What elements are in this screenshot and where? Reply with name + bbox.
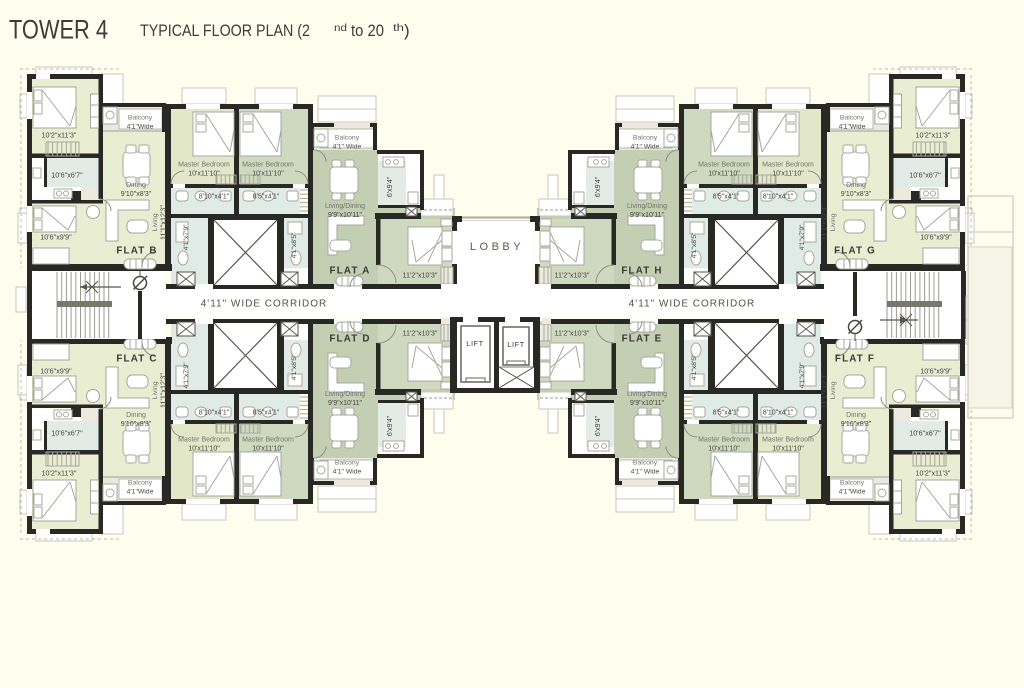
- svg-text:10'x11'10": 10'x11'10": [708, 171, 740, 178]
- svg-text:4'1"x8'5": 4'1"x8'5": [691, 354, 698, 381]
- svg-text:4'1"Wide: 4'1"Wide: [839, 489, 866, 496]
- svg-text:FLAT A: FLAT A: [330, 266, 371, 277]
- svg-text:10'x11'10": 10'x11'10": [772, 171, 804, 178]
- svg-text:9'9"x10'11": 9'9"x10'11": [328, 400, 362, 407]
- svg-text:to 20: to 20: [351, 21, 384, 40]
- svg-text:9'9"x10'11": 9'9"x10'11": [328, 212, 362, 219]
- svg-text:LIFT: LIFT: [466, 339, 483, 348]
- svg-text:Balcony: Balcony: [335, 460, 360, 467]
- svg-text:): ): [404, 21, 410, 40]
- svg-text:Dining: Dining: [126, 182, 146, 189]
- svg-text:4'1"x7'9": 4'1"x7'9": [183, 224, 190, 251]
- svg-text:9'10"x8'3": 9'10"x8'3": [121, 421, 152, 428]
- svg-text:9'10"x8'3": 9'10"x8'3": [841, 421, 872, 428]
- svg-text:Master Bedroom: Master Bedroom: [698, 437, 750, 444]
- svg-text:8'10"x4'1": 8'10"x4'1": [199, 193, 230, 200]
- svg-text:11'1"x12'3": 11'1"x12'3": [159, 205, 168, 240]
- svg-text:FLAT F: FLAT F: [835, 354, 875, 365]
- svg-text:LOBBY: LOBBY: [470, 241, 524, 253]
- svg-text:4'1"x8'5": 4'1"x8'5": [291, 354, 298, 381]
- svg-text:FLAT E: FLAT E: [622, 334, 663, 345]
- svg-text:4'1"Wide: 4'1"Wide: [839, 124, 866, 131]
- svg-text:4'11" WIDE CORRIDOR: 4'11" WIDE CORRIDOR: [629, 299, 756, 310]
- svg-text:10'2"x11'3": 10'2"x11'3": [42, 469, 77, 478]
- svg-text:TYPICAL FLOOR PLAN (2: TYPICAL FLOOR PLAN (2: [140, 21, 310, 40]
- svg-text:9'10"x8'3": 9'10"x8'3": [841, 191, 872, 198]
- svg-text:4'1" Wide: 4'1" Wide: [333, 144, 362, 151]
- svg-text:11'2"x10'3": 11'2"x10'3": [403, 271, 438, 280]
- svg-text:10'6"x9'9": 10'6"x9'9": [920, 233, 952, 242]
- svg-text:11'2"x10'3": 11'2"x10'3": [555, 329, 590, 338]
- svg-text:6'x9'4": 6'x9'4": [387, 415, 394, 436]
- svg-text:Master Bedroom: Master Bedroom: [242, 162, 294, 169]
- svg-text:TOWER 4: TOWER 4: [9, 15, 108, 45]
- svg-text:Balcony: Balcony: [840, 480, 865, 487]
- svg-text:11'2"x10'3": 11'2"x10'3": [555, 271, 590, 280]
- svg-text:10'6"x6'7": 10'6"x6'7": [51, 429, 83, 438]
- svg-text:Balcony: Balcony: [840, 115, 865, 122]
- svg-text:10'6"x9'9": 10'6"x9'9": [40, 233, 72, 242]
- svg-text:Master Bedroom: Master Bedroom: [242, 437, 294, 444]
- svg-text:Master Bedroom: Master Bedroom: [178, 162, 230, 169]
- svg-text:4'1"Wide: 4'1"Wide: [127, 124, 154, 131]
- svg-text:9'9"x10'11": 9'9"x10'11": [630, 212, 664, 219]
- svg-text:8'5"x4'1": 8'5"x4'1": [713, 409, 740, 416]
- svg-text:Master Bedroom: Master Bedroom: [762, 162, 814, 169]
- svg-text:Balcony: Balcony: [633, 135, 658, 142]
- svg-text:Balcony: Balcony: [633, 460, 658, 467]
- svg-text:8'10"x4'1": 8'10"x4'1": [763, 409, 794, 416]
- svg-text:4'1" Wide: 4'1" Wide: [333, 469, 362, 476]
- svg-text:11'2"x10'3": 11'2"x10'3": [403, 329, 438, 338]
- svg-text:10'6"x9'9": 10'6"x9'9": [920, 367, 952, 376]
- svg-text:9'10"x8'3": 9'10"x8'3": [121, 191, 152, 198]
- svg-text:10'x11'10": 10'x11'10": [708, 446, 740, 453]
- svg-text:10'2"x11'3": 10'2"x11'3": [42, 131, 77, 140]
- svg-text:Balcony: Balcony: [128, 480, 153, 487]
- svg-text:Dining: Dining: [126, 412, 146, 419]
- svg-text:4'1"x7'9": 4'1"x7'9": [799, 362, 806, 389]
- svg-text:Balcony: Balcony: [128, 115, 153, 122]
- svg-text:4'1" Wide: 4'1" Wide: [631, 469, 660, 476]
- svg-text:10'x11'10": 10'x11'10": [188, 446, 220, 453]
- svg-text:8'5"x4'1": 8'5"x4'1": [253, 409, 280, 416]
- svg-text:Living/Dining: Living/Dining: [325, 391, 365, 398]
- svg-text:4'1"Wide: 4'1"Wide: [127, 489, 154, 496]
- svg-text:th: th: [393, 22, 404, 34]
- svg-text:FLAT D: FLAT D: [329, 334, 370, 345]
- svg-text:10'x11'10": 10'x11'10": [772, 446, 804, 453]
- svg-text:FLAT G: FLAT G: [834, 246, 876, 257]
- svg-text:11'1"x12'3": 11'1"x12'3": [159, 373, 168, 408]
- svg-text:11'1"x12'3": 11'1"x12'3": [820, 205, 829, 240]
- svg-text:6'x9'4": 6'x9'4": [595, 415, 602, 436]
- svg-text:6'x9'4": 6'x9'4": [595, 176, 602, 197]
- svg-text:11'1"x12'3": 11'1"x12'3": [820, 373, 829, 408]
- svg-text:FLAT H: FLAT H: [621, 266, 662, 277]
- svg-text:6'x9'4": 6'x9'4": [387, 176, 394, 197]
- svg-text:4'11" WIDE CORRIDOR: 4'11" WIDE CORRIDOR: [201, 299, 328, 310]
- svg-text:9'9"x10'11": 9'9"x10'11": [630, 400, 664, 407]
- svg-text:Living/Dining: Living/Dining: [627, 203, 667, 210]
- svg-text:Living/Dining: Living/Dining: [627, 391, 667, 398]
- svg-text:Dining: Dining: [846, 412, 866, 419]
- svg-text:10'6"x6'7": 10'6"x6'7": [909, 429, 941, 438]
- svg-text:Living/Dining: Living/Dining: [325, 203, 365, 210]
- svg-text:8'5"x4'1": 8'5"x4'1": [713, 193, 740, 200]
- svg-text:Dining: Dining: [846, 182, 866, 189]
- svg-text:Living: Living: [830, 213, 837, 231]
- svg-text:Master Bedroom: Master Bedroom: [698, 162, 750, 169]
- svg-text:FLAT B: FLAT B: [116, 246, 157, 257]
- svg-text:8'10"x4'1": 8'10"x4'1": [763, 193, 794, 200]
- svg-text:4'1"x7'9": 4'1"x7'9": [799, 224, 806, 251]
- svg-text:10'x11'10": 10'x11'10": [188, 171, 220, 178]
- svg-text:4'1"x8'5": 4'1"x8'5": [291, 232, 298, 259]
- svg-text:4'1"x8'5": 4'1"x8'5": [691, 232, 698, 259]
- svg-text:10'6"x9'9": 10'6"x9'9": [40, 367, 72, 376]
- svg-text:8'10"x4'1": 8'10"x4'1": [199, 409, 230, 416]
- svg-text:Master Bedroom: Master Bedroom: [178, 437, 230, 444]
- svg-text:8'5"x4'1": 8'5"x4'1": [253, 193, 280, 200]
- svg-text:Living: Living: [830, 381, 837, 399]
- svg-text:10'6"x6'7": 10'6"x6'7": [51, 171, 83, 180]
- svg-text:Master Bedroom: Master Bedroom: [762, 437, 814, 444]
- svg-text:LIFT: LIFT: [507, 340, 524, 349]
- svg-text:10'2"x11'3": 10'2"x11'3": [916, 131, 951, 140]
- svg-text:nd: nd: [334, 22, 347, 34]
- svg-text:10'2"x11'3": 10'2"x11'3": [916, 469, 951, 478]
- svg-text:10'6"x6'7": 10'6"x6'7": [909, 171, 941, 180]
- svg-text:FLAT C: FLAT C: [116, 354, 157, 365]
- svg-text:4'1" Wide: 4'1" Wide: [631, 144, 660, 151]
- svg-text:Balcony: Balcony: [335, 135, 360, 142]
- svg-text:10'x11'10": 10'x11'10": [252, 171, 284, 178]
- svg-text:10'x11'10": 10'x11'10": [252, 446, 284, 453]
- svg-text:4'1"x7'9": 4'1"x7'9": [183, 362, 190, 389]
